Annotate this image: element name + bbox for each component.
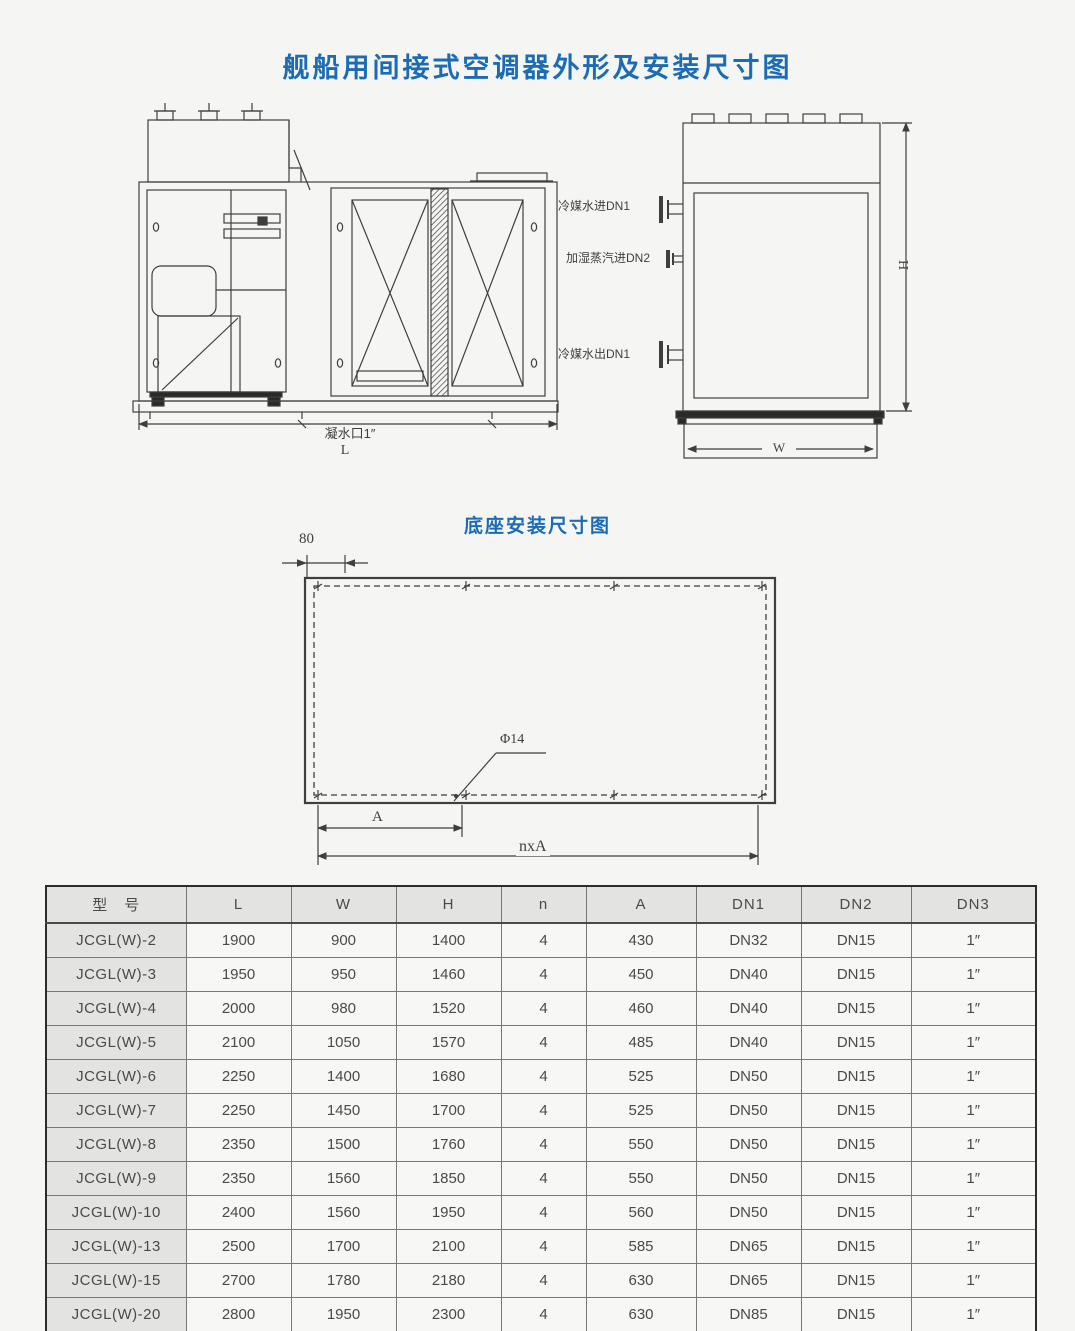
- table-row: JCGL(W)-4200098015204460DN40DN151″: [46, 992, 1036, 1026]
- value-cell: 1520: [396, 992, 501, 1026]
- value-cell: DN50: [696, 1128, 801, 1162]
- value-cell: DN32: [696, 923, 801, 958]
- value-cell: 525: [586, 1060, 696, 1094]
- value-cell: 1400: [291, 1060, 396, 1094]
- value-cell: DN15: [801, 1060, 911, 1094]
- value-cell: 485: [586, 1026, 696, 1060]
- value-cell: 2250: [186, 1060, 291, 1094]
- value-cell: DN15: [801, 1230, 911, 1264]
- value-cell: 1″: [911, 1128, 1036, 1162]
- value-cell: DN65: [696, 1264, 801, 1298]
- model-cell: JCGL(W)-4: [46, 992, 186, 1026]
- column-header: n: [501, 886, 586, 923]
- value-cell: 2500: [186, 1230, 291, 1264]
- column-header: W: [291, 886, 396, 923]
- value-cell: 1″: [911, 1162, 1036, 1196]
- value-cell: 4: [501, 1026, 586, 1060]
- pipe-fitting-inlet: [661, 196, 683, 223]
- value-cell: 1″: [911, 923, 1036, 958]
- pipe-label-steam-in: 加湿蒸汽进DN2: [566, 249, 650, 266]
- value-cell: 630: [586, 1298, 696, 1331]
- value-cell: 4: [501, 1196, 586, 1230]
- value-cell: 1850: [396, 1162, 501, 1196]
- dimension-table: 型 号LWHnADN1DN2DN3 JCGL(W)-21900900140044…: [45, 885, 1037, 1331]
- value-cell: 1″: [911, 1094, 1036, 1128]
- value-cell: DN15: [801, 958, 911, 992]
- pipe-label-chilled-water-out: 冷媒水出DN1: [558, 345, 630, 362]
- table-row: JCGL(W)-3195095014604450DN40DN151″: [46, 958, 1036, 992]
- value-cell: 585: [586, 1230, 696, 1264]
- outline-drawing: [0, 0, 1075, 505]
- model-cell: JCGL(W)-7: [46, 1094, 186, 1128]
- value-cell: 1780: [291, 1264, 396, 1298]
- value-cell: 4: [501, 1264, 586, 1298]
- value-cell: 2000: [186, 992, 291, 1026]
- pipe-fitting-steam: [668, 250, 683, 268]
- hole-diameter-label: Φ14: [500, 732, 524, 748]
- value-cell: 1700: [291, 1230, 396, 1264]
- table-row: JCGL(W)-52100105015704485DN40DN151″: [46, 1026, 1036, 1060]
- value-cell: 980: [291, 992, 396, 1026]
- column-header: A: [586, 886, 696, 923]
- value-cell: 450: [586, 958, 696, 992]
- value-cell: 2250: [186, 1094, 291, 1128]
- dim-label-A: A: [372, 809, 383, 826]
- value-cell: 4: [501, 1298, 586, 1331]
- dim-label-nxA: nxA: [516, 838, 550, 856]
- dim-label-L: L: [332, 443, 358, 459]
- value-cell: 460: [586, 992, 696, 1026]
- value-cell: DN50: [696, 1196, 801, 1230]
- table-row: JCGL(W)-202800195023004630DN85DN151″: [46, 1298, 1036, 1331]
- value-cell: 950: [291, 958, 396, 992]
- value-cell: DN15: [801, 923, 911, 958]
- column-header: H: [396, 886, 501, 923]
- value-cell: 1570: [396, 1026, 501, 1060]
- column-header: DN1: [696, 886, 801, 923]
- pipe-fitting-outlet: [661, 341, 683, 368]
- value-cell: DN40: [696, 958, 801, 992]
- model-cell: JCGL(W)-6: [46, 1060, 186, 1094]
- table-row: JCGL(W)-102400156019504560DN50DN151″: [46, 1196, 1036, 1230]
- table-row: JCGL(W)-62250140016804525DN50DN151″: [46, 1060, 1036, 1094]
- value-cell: 900: [291, 923, 396, 958]
- document-page: 舰船用间接式空调器外形及安装尺寸图: [0, 0, 1075, 1331]
- value-cell: DN15: [801, 1128, 911, 1162]
- column-header: 型 号: [46, 886, 186, 923]
- value-cell: 1680: [396, 1060, 501, 1094]
- model-cell: JCGL(W)-3: [46, 958, 186, 992]
- column-header: DN2: [801, 886, 911, 923]
- model-cell: JCGL(W)-15: [46, 1264, 186, 1298]
- column-header: L: [186, 886, 291, 923]
- value-cell: DN50: [696, 1060, 801, 1094]
- value-cell: 550: [586, 1162, 696, 1196]
- value-cell: 2400: [186, 1196, 291, 1230]
- value-cell: 2350: [186, 1128, 291, 1162]
- side-view: [661, 114, 912, 458]
- value-cell: DN15: [801, 1026, 911, 1060]
- value-cell: DN15: [801, 1264, 911, 1298]
- value-cell: 4: [501, 992, 586, 1026]
- value-cell: 1″: [911, 1264, 1036, 1298]
- base-installation-drawing: [0, 505, 1075, 885]
- model-cell: JCGL(W)-2: [46, 923, 186, 958]
- column-header: DN3: [911, 886, 1036, 923]
- table-row: JCGL(W)-152700178021804630DN65DN151″: [46, 1264, 1036, 1298]
- value-cell: 4: [501, 923, 586, 958]
- value-cell: 1950: [186, 958, 291, 992]
- value-cell: DN65: [696, 1230, 801, 1264]
- value-cell: 1560: [291, 1196, 396, 1230]
- value-cell: 1950: [396, 1196, 501, 1230]
- table-row: JCGL(W)-132500170021004585DN65DN151″: [46, 1230, 1036, 1264]
- value-cell: 2100: [186, 1026, 291, 1060]
- value-cell: DN15: [801, 1162, 911, 1196]
- value-cell: 1500: [291, 1128, 396, 1162]
- dim-label-H: H: [894, 260, 910, 270]
- value-cell: DN15: [801, 1196, 911, 1230]
- table-body: JCGL(W)-2190090014004430DN32DN151″JCGL(W…: [46, 923, 1036, 1331]
- value-cell: 2300: [396, 1298, 501, 1331]
- value-cell: 1560: [291, 1162, 396, 1196]
- model-cell: JCGL(W)-9: [46, 1162, 186, 1196]
- value-cell: DN15: [801, 1094, 911, 1128]
- model-cell: JCGL(W)-20: [46, 1298, 186, 1331]
- pipe-label-chilled-water-in: 冷媒水进DN1: [558, 197, 630, 214]
- table-row: JCGL(W)-2190090014004430DN32DN151″: [46, 923, 1036, 958]
- value-cell: 2100: [396, 1230, 501, 1264]
- condensate-outlet-label: 凝水口1″: [295, 423, 405, 442]
- value-cell: 550: [586, 1128, 696, 1162]
- value-cell: DN50: [696, 1094, 801, 1128]
- value-cell: 1950: [291, 1298, 396, 1331]
- value-cell: 1″: [911, 1298, 1036, 1331]
- table-row: JCGL(W)-82350150017604550DN50DN151″: [46, 1128, 1036, 1162]
- value-cell: 2180: [396, 1264, 501, 1298]
- dimension-table-wrap: 型 号LWHnADN1DN2DN3 JCGL(W)-21900900140044…: [45, 885, 1035, 1331]
- value-cell: DN40: [696, 992, 801, 1026]
- value-cell: 4: [501, 1230, 586, 1264]
- value-cell: DN15: [801, 992, 911, 1026]
- value-cell: 1″: [911, 958, 1036, 992]
- value-cell: 4: [501, 958, 586, 992]
- value-cell: 1400: [396, 923, 501, 958]
- dim-label-80: 80: [299, 531, 314, 548]
- value-cell: 1050: [291, 1026, 396, 1060]
- value-cell: 1760: [396, 1128, 501, 1162]
- value-cell: DN15: [801, 1298, 911, 1331]
- model-cell: JCGL(W)-5: [46, 1026, 186, 1060]
- value-cell: 430: [586, 923, 696, 958]
- value-cell: 4: [501, 1162, 586, 1196]
- value-cell: 560: [586, 1196, 696, 1230]
- value-cell: 1460: [396, 958, 501, 992]
- table-header-row: 型 号LWHnADN1DN2DN3: [46, 886, 1036, 923]
- table-row: JCGL(W)-72250145017004525DN50DN151″: [46, 1094, 1036, 1128]
- value-cell: DN40: [696, 1026, 801, 1060]
- value-cell: 1″: [911, 1230, 1036, 1264]
- value-cell: DN85: [696, 1298, 801, 1331]
- value-cell: 2800: [186, 1298, 291, 1331]
- value-cell: 1700: [396, 1094, 501, 1128]
- value-cell: 630: [586, 1264, 696, 1298]
- value-cell: 525: [586, 1094, 696, 1128]
- value-cell: 4: [501, 1060, 586, 1094]
- value-cell: 1″: [911, 1026, 1036, 1060]
- value-cell: DN50: [696, 1162, 801, 1196]
- model-cell: JCGL(W)-13: [46, 1230, 186, 1264]
- value-cell: 4: [501, 1094, 586, 1128]
- value-cell: 1″: [911, 1060, 1036, 1094]
- table-row: JCGL(W)-92350156018504550DN50DN151″: [46, 1162, 1036, 1196]
- value-cell: 1″: [911, 1196, 1036, 1230]
- value-cell: 1″: [911, 992, 1036, 1026]
- value-cell: 1450: [291, 1094, 396, 1128]
- value-cell: 2350: [186, 1162, 291, 1196]
- dim-label-W: W: [762, 440, 796, 456]
- model-cell: JCGL(W)-10: [46, 1196, 186, 1230]
- front-view: [133, 103, 558, 430]
- model-cell: JCGL(W)-8: [46, 1128, 186, 1162]
- value-cell: 4: [501, 1128, 586, 1162]
- value-cell: 1900: [186, 923, 291, 958]
- value-cell: 2700: [186, 1264, 291, 1298]
